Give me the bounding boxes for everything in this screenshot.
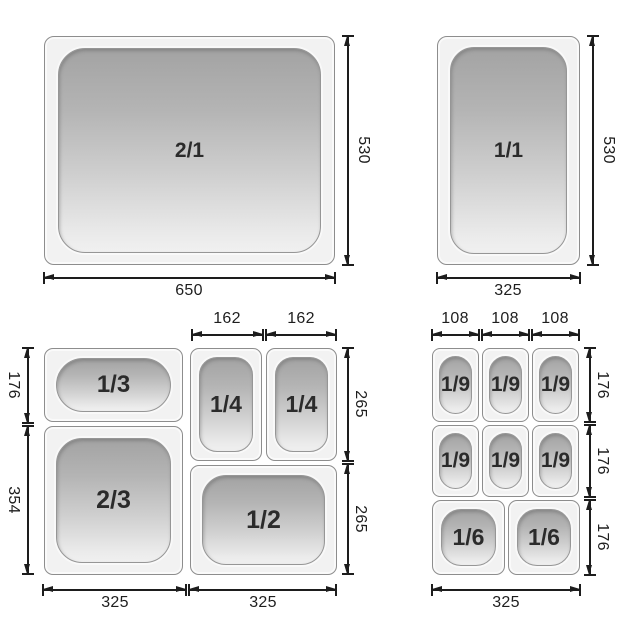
gastronorm-diagram: 2/1 650 530 1/1 325 530 1/3 1/4 1/4 2/3 … <box>0 0 623 623</box>
dim-line-265-b <box>347 464 349 574</box>
dim-line-325-bl-a <box>43 589 186 591</box>
dim-line-354 <box>27 426 29 574</box>
dim-value-176-b: 176 <box>593 447 611 475</box>
dim-value-162-a: 162 <box>213 310 241 328</box>
dim-line-325-bl-b <box>189 589 336 591</box>
pan-1-2: 1/2 <box>190 465 337 575</box>
dim-line-108-a <box>432 334 479 336</box>
pan-1-9-c-label: 1/9 <box>533 349 578 421</box>
pan-1-9-c: 1/9 <box>532 348 579 422</box>
dim-value-530-right: 530 <box>599 136 617 164</box>
dim-line-108-b <box>482 334 529 336</box>
dim-value-176-c: 176 <box>593 523 611 551</box>
dim-value-108-b: 108 <box>491 310 519 328</box>
dim-line-176-left <box>27 348 29 423</box>
dim-line-108-c <box>532 334 579 336</box>
pan-1-9-a: 1/9 <box>432 348 479 422</box>
pan-1-9-d-label: 1/9 <box>433 426 478 496</box>
pan-1-9-d: 1/9 <box>432 425 479 497</box>
dim-value-325-bl-b: 325 <box>249 594 277 612</box>
dim-line-530-left <box>347 36 349 265</box>
dim-value-162-b: 162 <box>287 310 315 328</box>
dim-value-265-b: 265 <box>351 505 369 533</box>
pan-1-1: 1/1 <box>437 36 580 265</box>
pan-1-1-label: 1/1 <box>438 37 579 264</box>
pan-1-6-b-label: 1/6 <box>509 501 579 574</box>
pan-1-6-a: 1/6 <box>432 500 505 575</box>
dim-value-108-a: 108 <box>441 310 469 328</box>
dim-line-176-a <box>589 348 591 422</box>
pan-1-9-b: 1/9 <box>482 348 529 422</box>
dim-line-325-br <box>432 589 580 591</box>
dim-value-176-left: 176 <box>4 371 22 399</box>
dim-value-325-bl-a: 325 <box>101 594 129 612</box>
dim-line-176-b <box>589 425 591 497</box>
dim-value-354: 354 <box>4 486 22 514</box>
pan-1-3-label: 1/3 <box>45 349 182 421</box>
dim-value-325-br: 325 <box>492 594 520 612</box>
pan-1-4-b-label: 1/4 <box>267 349 336 460</box>
pan-1-4-a-label: 1/4 <box>191 349 261 460</box>
dim-line-162-b <box>266 334 336 336</box>
dim-value-176-a: 176 <box>593 371 611 399</box>
dim-value-265-a: 265 <box>351 390 369 418</box>
dim-line-176-c <box>589 500 591 575</box>
pan-2-3: 2/3 <box>44 426 183 575</box>
pan-1-9-e: 1/9 <box>482 425 529 497</box>
dim-line-162-a <box>192 334 263 336</box>
pan-1-9-f-label: 1/9 <box>533 426 578 496</box>
pan-1-9-e-label: 1/9 <box>483 426 528 496</box>
pan-1-6-b: 1/6 <box>508 500 580 575</box>
pan-1-9-f: 1/9 <box>532 425 579 497</box>
dim-line-530-right <box>592 36 594 265</box>
pan-1-3: 1/3 <box>44 348 183 422</box>
pan-2-1-label: 2/1 <box>45 37 334 264</box>
dim-line-650 <box>44 277 335 279</box>
dim-value-530-left: 530 <box>354 136 372 164</box>
dim-line-265-a <box>347 348 349 461</box>
pan-2-1: 2/1 <box>44 36 335 265</box>
dim-value-108-c: 108 <box>541 310 569 328</box>
dim-line-325-top-right <box>437 277 580 279</box>
pan-1-2-label: 1/2 <box>191 466 336 574</box>
pan-1-9-a-label: 1/9 <box>433 349 478 421</box>
dim-value-650: 650 <box>175 282 203 300</box>
pan-1-4-a: 1/4 <box>190 348 262 461</box>
pan-2-3-label: 2/3 <box>45 427 182 574</box>
dim-value-325-top-right: 325 <box>494 282 522 300</box>
pan-1-4-b: 1/4 <box>266 348 337 461</box>
pan-1-6-a-label: 1/6 <box>433 501 504 574</box>
pan-1-9-b-label: 1/9 <box>483 349 528 421</box>
